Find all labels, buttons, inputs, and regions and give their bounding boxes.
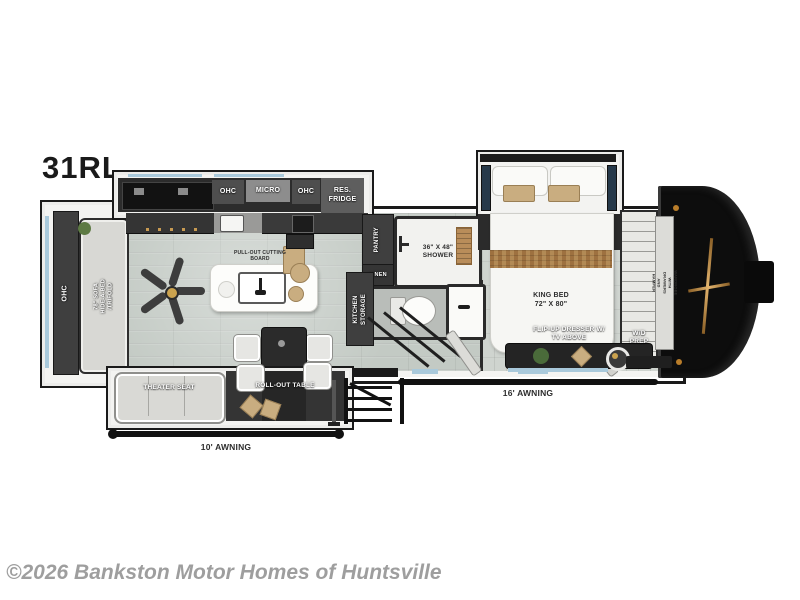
hitch-pin-box: [744, 261, 774, 303]
bed-accent-runner: [490, 250, 612, 268]
dealer-watermark: ©2026 Bankston Motor Homes of Huntsville: [6, 561, 442, 585]
theater-seat-divider: [184, 376, 185, 416]
microwave: MICRO: [246, 180, 290, 202]
island-faucet-base: [255, 290, 266, 295]
island-dish: [218, 281, 235, 298]
rear-slide-window: [45, 216, 49, 368]
range-cooktop: [122, 182, 214, 210]
fridge-label: RES. FRIDGE: [329, 187, 357, 205]
kitchen-slide-window-right: [214, 174, 284, 177]
step-rung: [348, 419, 392, 422]
flip-up-dresser-label: FLIP-UP DRESSER W/ TV ABOVE: [505, 326, 633, 342]
sofa-label: 78" SOFA HIDE-A-BED /TRIFOLD: [94, 273, 115, 319]
kitchen-counter-right: [262, 213, 368, 234]
cap-marker-light-top: [673, 205, 679, 211]
kitchen-slide-window-left: [128, 174, 202, 177]
bedroom-slide-window-right: [607, 165, 617, 211]
island-sink: [238, 272, 286, 304]
wardrobe-label: WARDROBE WITH DRAWERS AND HAMPER: [651, 270, 679, 295]
ohc-left-cabinet: OHC: [212, 180, 244, 204]
entry-steps: [344, 378, 404, 424]
residential-fridge: RES. FRIDGE: [321, 178, 364, 214]
awning-16-bar: [398, 379, 658, 385]
dresser-plant: [533, 348, 549, 364]
bottom-wall-window: [518, 369, 548, 374]
pantry-label: PANTRY: [374, 227, 382, 252]
island-trash-bin: [286, 234, 314, 249]
range-knobs: [146, 228, 200, 231]
rear-ohc-label: OHC: [62, 285, 71, 301]
plant-decor: [78, 222, 91, 235]
table-decor: [278, 340, 285, 347]
nightstand-left: [478, 214, 490, 250]
stabilizer-foot: [328, 422, 340, 426]
wd-prep-label: W/D PREP: [618, 330, 660, 346]
cooktop-burner: [178, 188, 188, 195]
dinette-chair: [305, 334, 333, 362]
theater-seat-divider: [148, 376, 149, 416]
bedroom-slide-window-left: [481, 165, 491, 211]
roll-out-table-label: ROLL-OUT TABLE: [240, 382, 330, 390]
sofa-hide-a-bed: 78" SOFA HIDE-A-BED /TRIFOLD: [79, 218, 129, 374]
vanity-faucet: [458, 305, 470, 309]
model-title: 31RL: [42, 150, 122, 186]
stair-landing: [352, 368, 398, 377]
king-bed-label: KING BED 72" X 80": [505, 292, 597, 310]
awning-10-cap-right: [334, 429, 344, 439]
ohc-left-label: OHC: [220, 188, 236, 197]
dresser-tv-speaker-center: [612, 353, 618, 359]
fridge-base: [292, 215, 314, 233]
accent-pillow-right: [548, 185, 580, 202]
fan-hub: [165, 286, 179, 300]
pantry: PANTRY: [362, 214, 394, 266]
bar-stool: [288, 286, 304, 302]
kitchen-storage-label: KITCHEN STORAGE: [353, 294, 368, 325]
shower-fixture-arm: [399, 243, 409, 246]
awning-10-cap-left: [108, 429, 118, 439]
fan-blade: [175, 287, 205, 295]
awning-10-bar: [112, 431, 340, 437]
bottom-wall-window: [412, 369, 438, 374]
dinette-chair: [233, 334, 261, 362]
kitchen-sink-top: [220, 215, 244, 232]
bar-stool: [290, 263, 310, 283]
shower-seat: [456, 227, 472, 265]
microwave-label: MICRO: [256, 187, 280, 196]
step-rung: [348, 397, 392, 400]
cutting-board-label: PULL-OUT CUTTING BOARD: [222, 250, 298, 263]
cap-marker-light-bottom: [676, 359, 682, 365]
stabilizer-post: [332, 380, 336, 424]
theater-seat-label: THEATER SEAT: [124, 384, 214, 392]
shower-label: 36" X 48" SHOWER: [423, 244, 453, 260]
floorplan-image: 31RL OHC 78" SOFA HIDE-A-BED /TRIFOLD OH…: [0, 0, 800, 600]
accent-pillow-left: [503, 185, 535, 202]
rear-ohc-cabinet: OHC: [53, 211, 79, 375]
step-rung: [348, 408, 392, 411]
kitchen-storage: KITCHEN STORAGE: [346, 272, 374, 346]
theater-seat: [114, 372, 226, 424]
ohc-right-label: OHC: [298, 188, 314, 197]
cooktop-burner: [134, 188, 144, 195]
ohc-right-cabinet: OHC: [292, 180, 320, 204]
bedroom-slide-backwall: [480, 154, 616, 162]
awning-10-label: 10' AWNING: [176, 442, 276, 453]
awning-16-label: 16' AWNING: [478, 388, 578, 399]
wd-prep-cabinet: [626, 356, 672, 368]
